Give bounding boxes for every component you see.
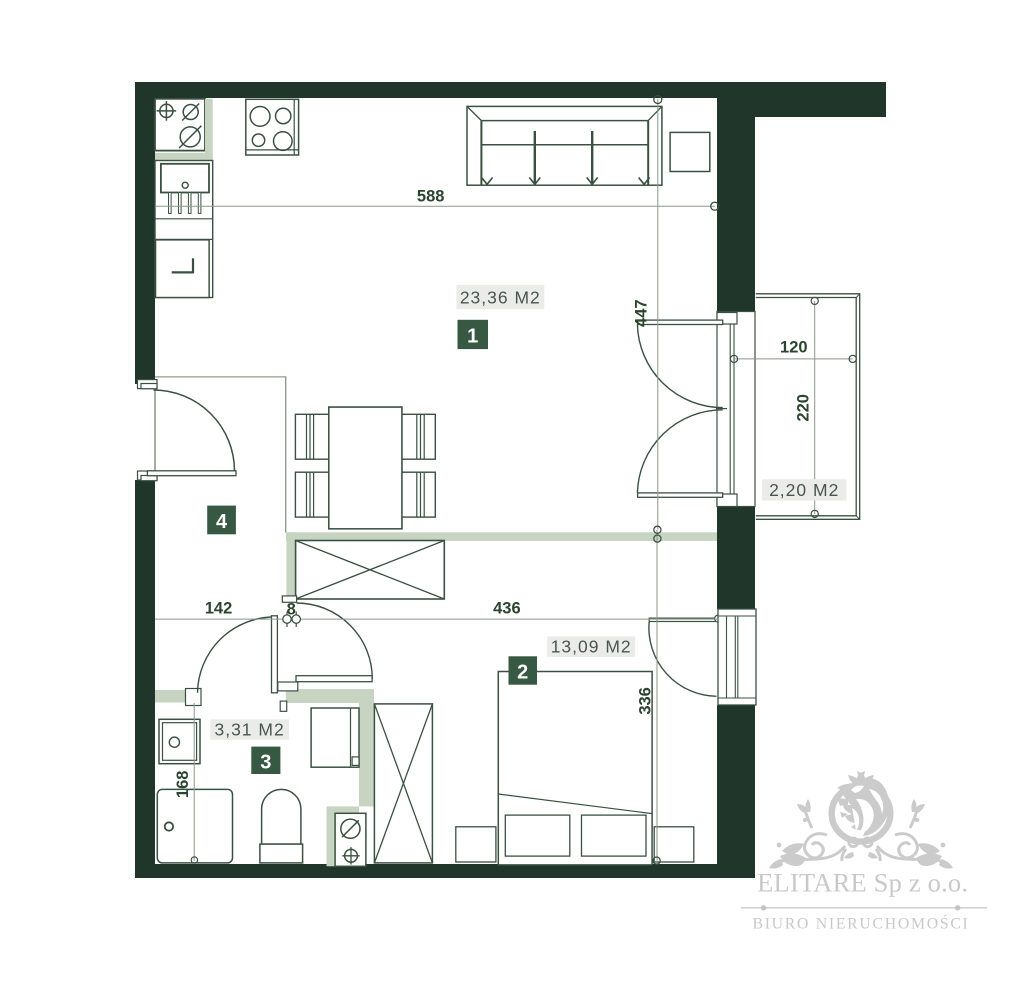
svg-text:447: 447 [633,299,651,327]
svg-text:1: 1 [467,326,478,348]
svg-text:2,20 M2: 2,20 M2 [769,480,839,500]
svg-text:13,09 M2: 13,09 M2 [551,637,632,657]
svg-text:588: 588 [417,188,445,206]
svg-text:168: 168 [174,771,192,799]
svg-text:336: 336 [637,687,655,715]
svg-text:23,36 M2: 23,36 M2 [460,287,541,307]
svg-text:220: 220 [794,394,812,422]
svg-text:3,31 M2: 3,31 M2 [214,720,284,740]
svg-text:436: 436 [493,600,521,618]
svg-text:4: 4 [216,511,228,533]
svg-text:2: 2 [517,661,528,683]
svg-text:120: 120 [780,339,808,357]
svg-text:BIURO NIERUCHOMOŚCI: BIURO NIERUCHOMOŚCI [752,913,969,932]
svg-text:142: 142 [205,600,233,618]
svg-text:ELITARE Sp z o.o.: ELITARE Sp z o.o. [757,868,968,898]
svg-text:3: 3 [260,751,271,773]
